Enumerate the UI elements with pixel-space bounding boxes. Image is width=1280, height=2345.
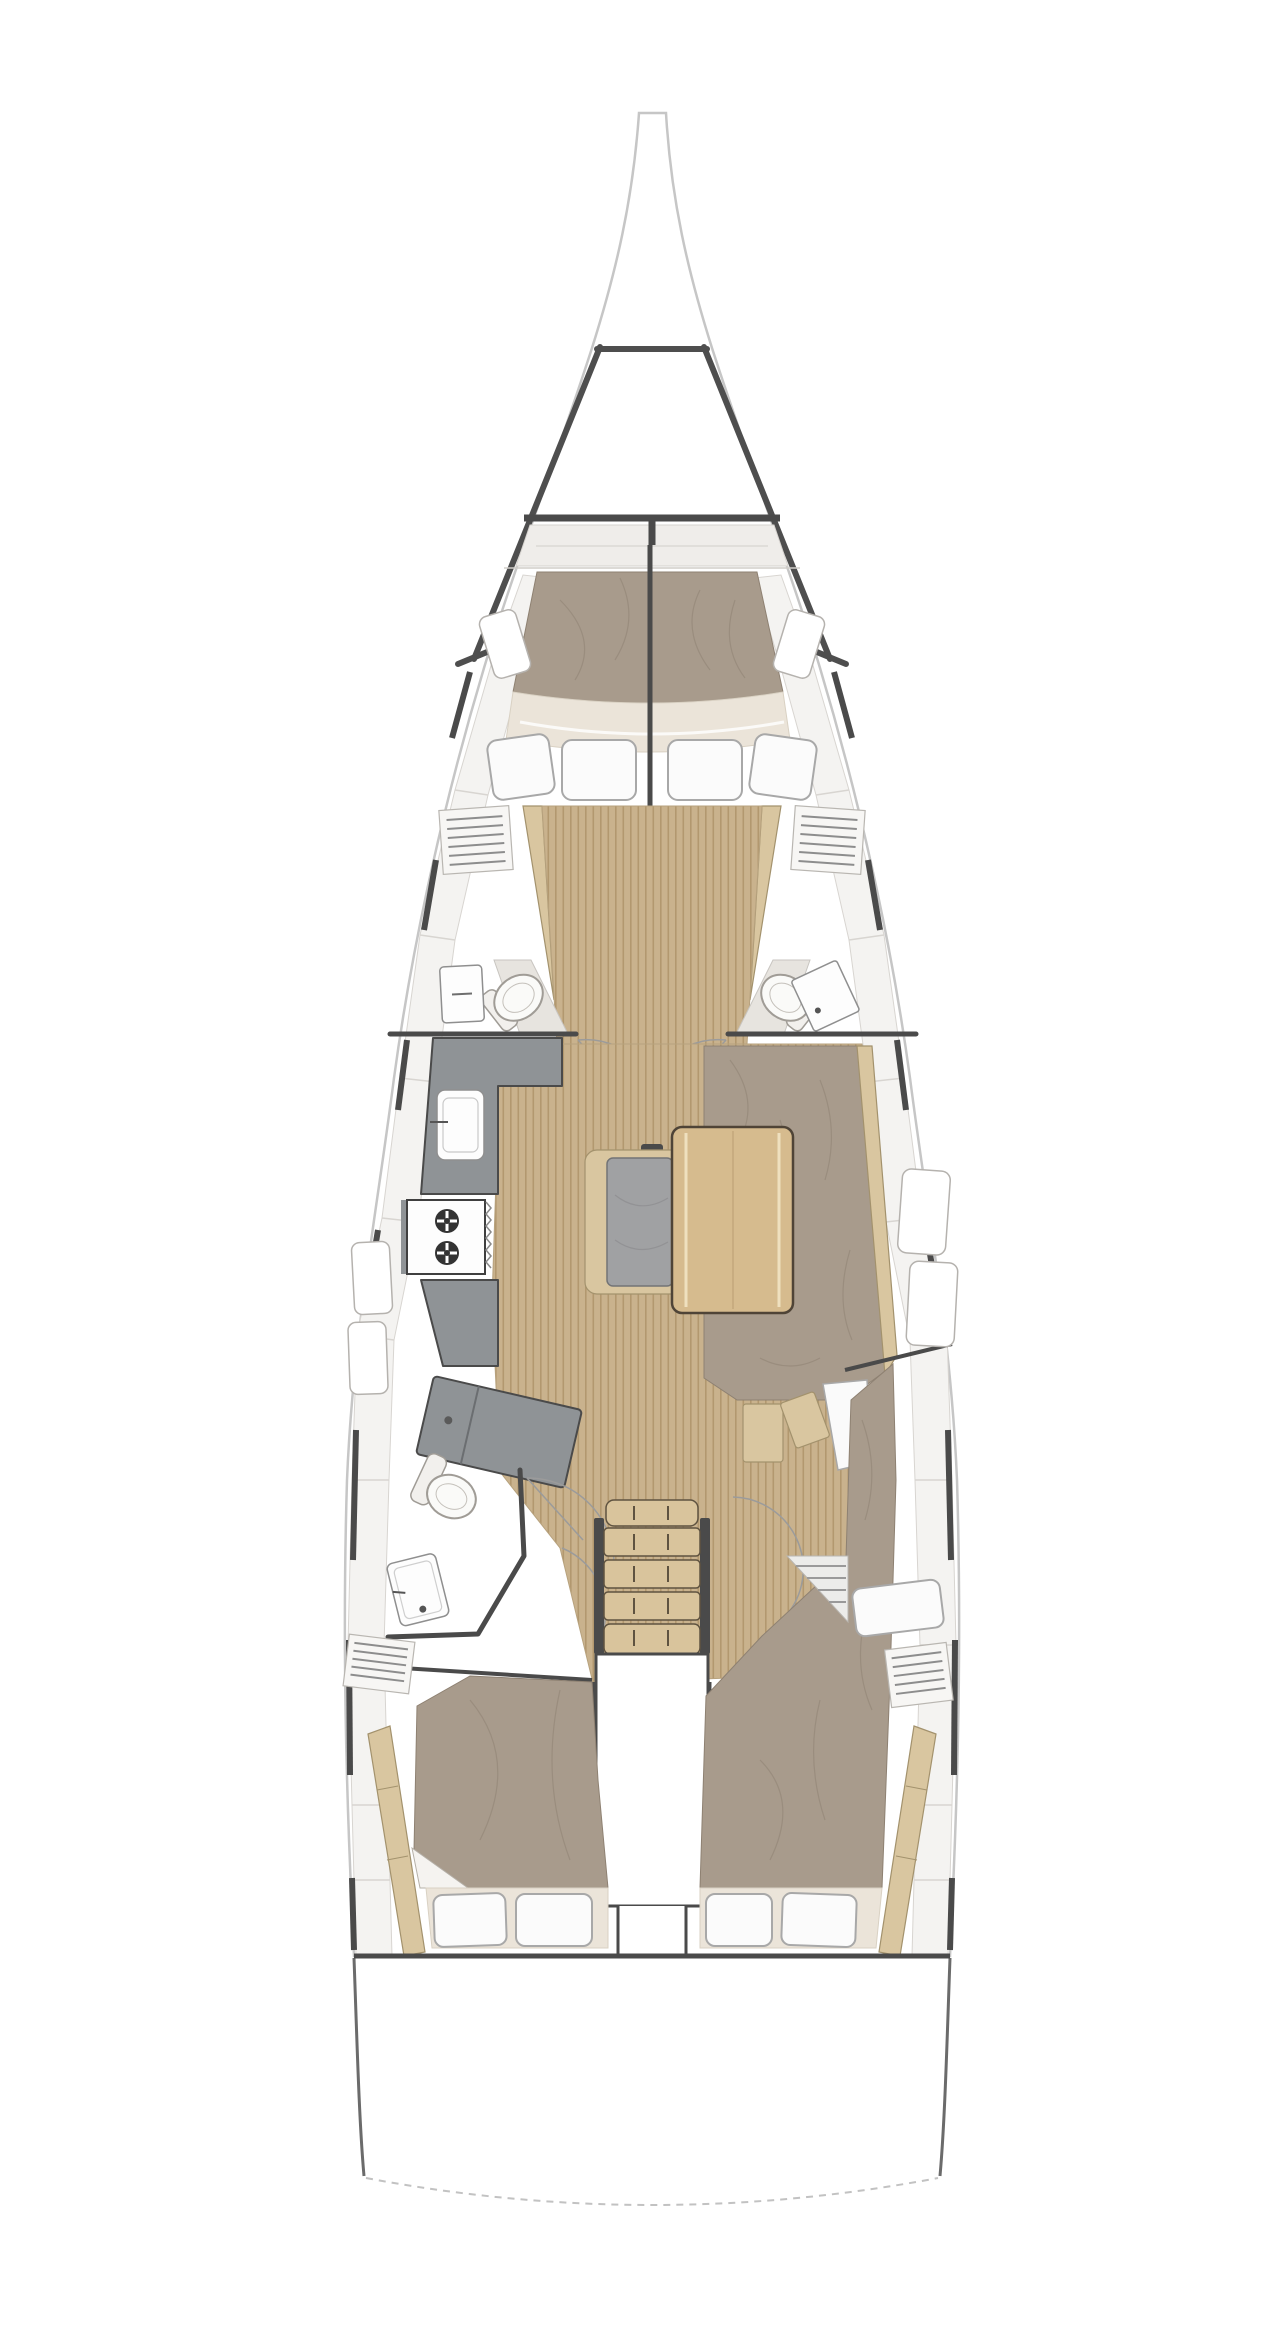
engine-compartment bbox=[596, 1654, 708, 1906]
cabin-louvers-port bbox=[343, 1634, 415, 1694]
settee-cabinet bbox=[743, 1404, 783, 1462]
locker-louvers-port bbox=[439, 806, 513, 875]
galley-sink bbox=[430, 1090, 484, 1160]
locker-louvers-starboard bbox=[791, 806, 865, 875]
stern-curve bbox=[366, 2178, 938, 2205]
cabin-louvers-starboard bbox=[885, 1642, 954, 1707]
pillow-starboard-mid bbox=[851, 1579, 944, 1637]
berth-port bbox=[414, 1676, 608, 1888]
stern-swim-platform bbox=[354, 1958, 950, 2205]
burner-2 bbox=[435, 1241, 459, 1265]
forward-walkway bbox=[523, 806, 781, 1044]
salon-table bbox=[672, 1127, 793, 1313]
aft-center-passage bbox=[618, 1906, 686, 1958]
burner-1 bbox=[435, 1209, 459, 1233]
vanity-port bbox=[440, 965, 485, 1023]
companionway-stairs bbox=[594, 1500, 710, 1654]
floorplan-canvas bbox=[0, 0, 1280, 2345]
galley-stove bbox=[401, 1200, 491, 1274]
yacht-floorplan bbox=[0, 0, 1280, 2345]
